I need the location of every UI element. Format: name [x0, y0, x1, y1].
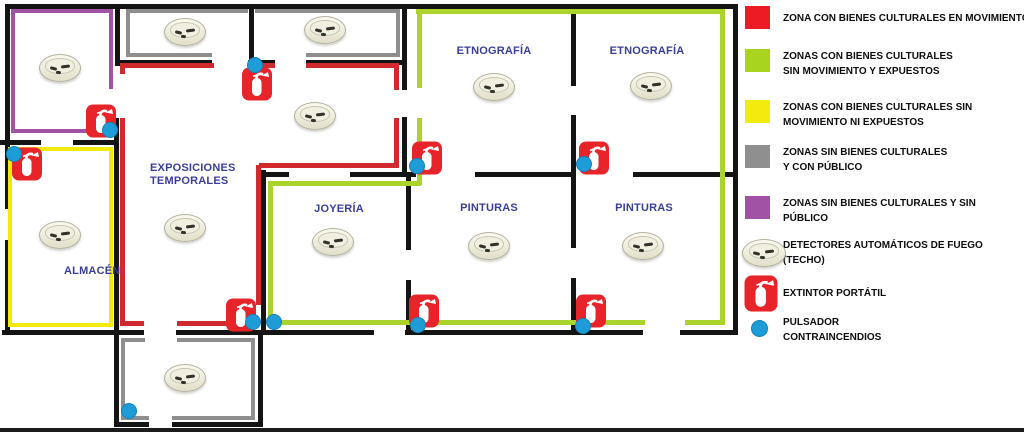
legend-item: DETECTORES AUTOMÁTICOS DE FUEGO(TECHO)	[745, 238, 983, 268]
legend-icon-square	[745, 145, 783, 168]
legend-item: EXTINTOR PORTÁTIL	[745, 275, 886, 312]
legend-label: PULSADORCONTRAINCENDIOS	[783, 312, 881, 345]
legend-label-line: ZONA CON BIENES CULTURALES EN MOVIMIENTO	[783, 11, 1024, 26]
fire-call-point-dot	[751, 320, 768, 337]
legend-label-line: ZONAS SIN BIENES CULTURALES Y SIN	[783, 196, 976, 211]
legend-label: ZONAS SIN BIENES CULTURALES Y SINPÚBLICO	[783, 196, 976, 226]
legend-label-line: ZONAS CON BIENES CULTURALES	[783, 49, 953, 64]
detector-vent-dash	[759, 256, 764, 259]
legend-label: ZONA CON BIENES CULTURALES EN MOVIMIENTO	[783, 6, 1024, 26]
legend-item: ZONAS SIN BIENES CULTURALESY CON PÚBLICO	[745, 145, 947, 175]
legend-label: EXTINTOR PORTÁTIL	[783, 275, 886, 301]
legend-item: ZONAS SIN BIENES CULTURALES Y SINPÚBLICO	[745, 196, 976, 226]
legend-label: ZONAS SIN BIENES CULTURALESY CON PÚBLICO	[783, 145, 947, 175]
legend-label-line: DETECTORES AUTOMÁTICOS DE FUEGO	[783, 238, 983, 253]
legend: ZONA CON BIENES CULTURALES EN MOVIMIENTO…	[0, 0, 1024, 432]
legend-item: ZONA CON BIENES CULTURALES EN MOVIMIENTO	[745, 6, 1024, 29]
legend-label: ZONAS CON BIENES CULTURALESSIN MOVIMIENT…	[783, 49, 953, 79]
zone-color-swatch	[745, 196, 770, 219]
legend-item: ZONAS CON BIENES CULTURALES SINMOVIMIENT…	[745, 100, 972, 130]
legend-label-line: ZONAS CON BIENES CULTURALES SIN	[783, 100, 972, 115]
legend-item: PULSADORCONTRAINCENDIOS	[745, 312, 881, 345]
legend-icon-dot	[745, 312, 783, 338]
zone-color-swatch	[745, 145, 770, 168]
legend-label-line: Y CON PÚBLICO	[783, 160, 947, 175]
legend-icon-square	[745, 196, 783, 219]
bottom-edge-line	[0, 428, 1024, 432]
legend-item: ZONAS CON BIENES CULTURALESSIN MOVIMIENT…	[745, 49, 953, 79]
legend-label-line: (TECHO)	[783, 253, 983, 268]
smoke-detector-icon	[742, 239, 786, 267]
legend-label-line: SIN MOVIMIENTO Y EXPUESTOS	[783, 64, 953, 79]
legend-label-line: PÚBLICO	[783, 211, 976, 226]
legend-label: DETECTORES AUTOMÁTICOS DE FUEGO(TECHO)	[783, 238, 983, 268]
legend-label-line: PULSADOR	[783, 315, 881, 330]
fire-safety-floor-plan: ETNOGRAFÍAETNOGRAFÍAEXPOSICIONESTEMPORAL…	[0, 0, 1024, 432]
legend-label-line: MOVIMIENTO NI EXPUESTOS	[783, 115, 972, 130]
legend-label: ZONAS CON BIENES CULTURALES SINMOVIMIENT…	[783, 100, 972, 130]
legend-label-line: EXTINTOR PORTÁTIL	[783, 286, 886, 301]
legend-label-line: ZONAS SIN BIENES CULTURALES	[783, 145, 947, 160]
zone-color-swatch	[745, 6, 770, 29]
legend-label-line: CONTRAINCENDIOS	[783, 330, 881, 345]
legend-icon-extinguisher	[745, 275, 783, 312]
extinguisher-icon	[745, 275, 778, 311]
zone-color-swatch	[745, 100, 770, 123]
legend-icon-square	[745, 100, 783, 123]
zone-color-swatch	[745, 49, 770, 72]
legend-icon-square	[745, 49, 783, 72]
legend-icon-detector	[745, 238, 783, 268]
legend-icon-square	[745, 6, 783, 29]
